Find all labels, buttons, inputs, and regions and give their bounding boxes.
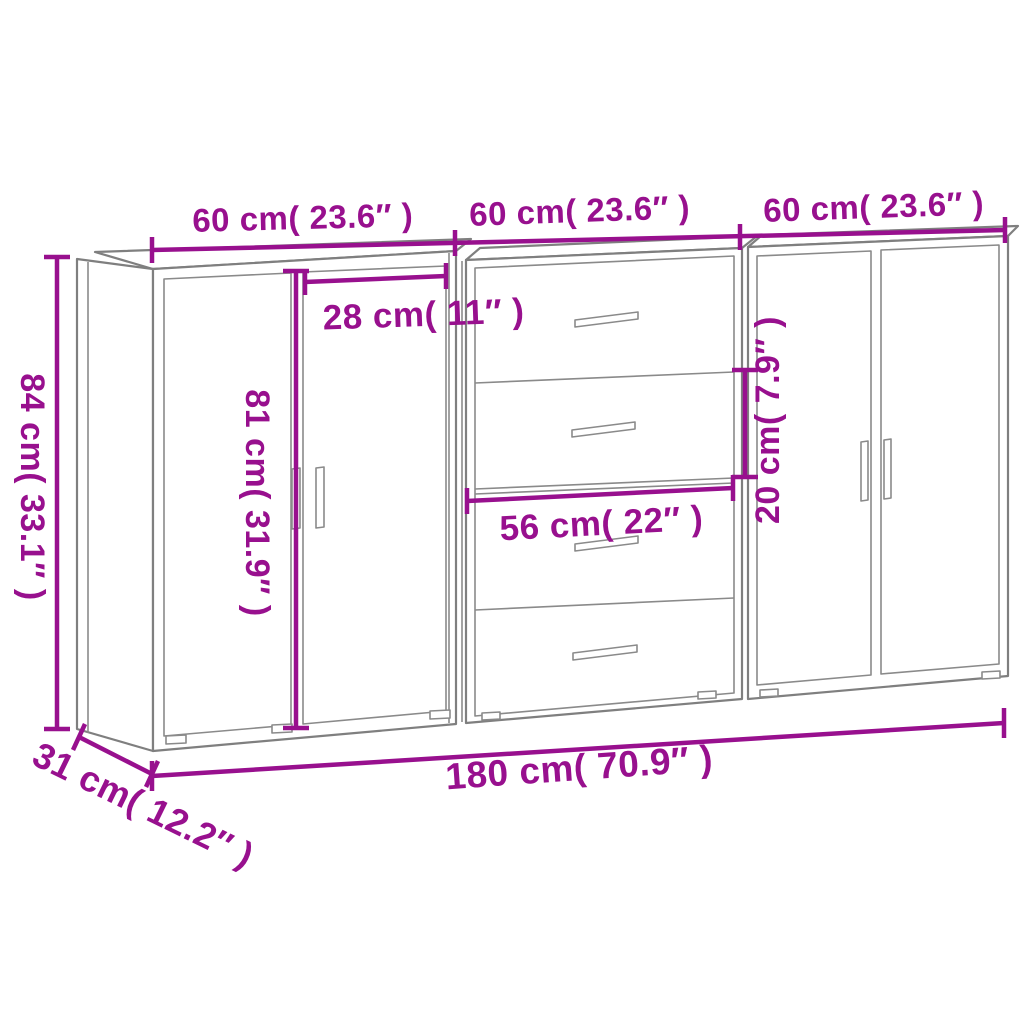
label-unit1-width: 60 cm( 23.6″ ) — [192, 196, 414, 239]
label-unit2-width: 60 cm( 23.6″ ) — [469, 188, 691, 233]
label-unit3-width: 60 cm( 23.6″ ) — [763, 184, 985, 229]
left-cabinet-foot — [430, 710, 450, 719]
label-door-width: 28 cm( 11″ ) — [322, 291, 525, 337]
left-cabinet-foot — [166, 735, 186, 744]
dimension-diagram: 60 cm( 23.6″ ) 60 cm( 23.6″ ) 60 cm( 23.… — [0, 0, 1024, 1024]
middle-cabinet-foot — [698, 691, 716, 699]
label-overall-width: 180 cm( 70.9″ ) — [444, 738, 714, 798]
left-cabinet-handle-right — [316, 467, 324, 528]
label-overall-depth: 31 cm( 12.2″ ) — [26, 734, 260, 876]
right-cabinet-door-right — [881, 245, 999, 674]
label-door-height: 81 cm( 31.9″ ) — [238, 389, 276, 616]
label-overall-height: 84 cm( 33.1″ ) — [13, 373, 51, 600]
right-cabinet-handle-left — [861, 441, 868, 501]
right-cabinet-handle-right — [884, 439, 891, 499]
cabinet-drawing — [77, 226, 1018, 751]
label-drawer-height: 20 cm( 7.9″ ) — [749, 316, 787, 524]
right-cabinet-foot — [760, 689, 778, 697]
right-cabinet — [748, 226, 1018, 699]
right-cabinet-foot — [982, 671, 1000, 679]
diagram-page: 60 cm( 23.6″ ) 60 cm( 23.6″ ) 60 cm( 23.… — [0, 0, 1024, 1024]
middle-cabinet-foot — [482, 712, 500, 720]
